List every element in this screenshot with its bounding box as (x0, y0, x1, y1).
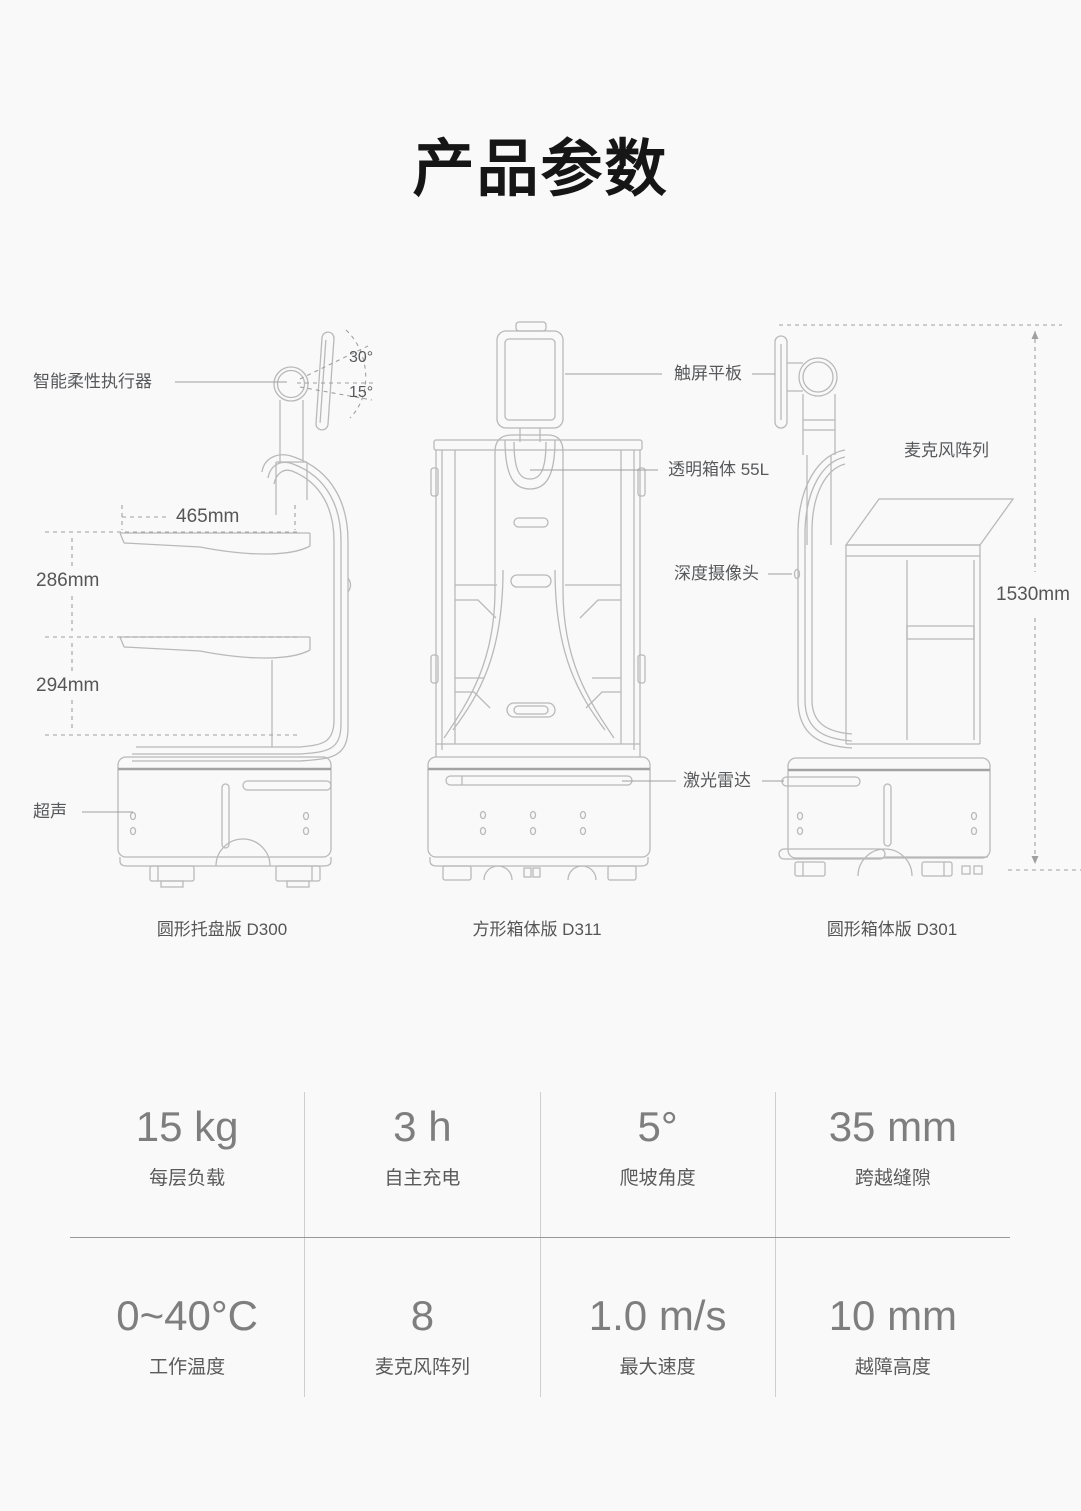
label-touchscreen: 触屏平板 (674, 365, 742, 384)
spec-label: 跨越缝隙 (776, 1163, 1010, 1190)
spec-label: 每层负载 (70, 1163, 304, 1190)
spec-label: 麦克风阵列 (305, 1352, 539, 1379)
label-ultrasonic: 超声 (33, 803, 67, 822)
spec-value: 35 mm (776, 1102, 1010, 1152)
label-total-height: 1530mm (996, 585, 1070, 606)
spec-cell-max-speed: 1.0 m/s 最大速度 (541, 1238, 776, 1397)
spec-value: 10 mm (776, 1291, 1010, 1341)
label-mic-array: 麦克风阵列 (904, 442, 989, 461)
spec-value: 5° (541, 1102, 775, 1152)
spec-grid: 15 kg 每层负载 3 h 自主充电 5° 爬坡角度 35 mm 跨越缝隙 0… (70, 1092, 1010, 1397)
label-actuator: 智能柔性执行器 (33, 373, 152, 392)
label-angle-up: 30° (349, 349, 373, 367)
spec-value: 0~40°C (70, 1291, 304, 1341)
spec-cell-payload: 15 kg 每层负载 (70, 1092, 305, 1237)
spec-cell-gap-crossing: 35 mm 跨越缝隙 (776, 1092, 1010, 1237)
product-spec-page: 产品参数 (0, 0, 1081, 1511)
label-lidar: 激光雷达 (683, 772, 751, 791)
spec-label: 爬坡角度 (541, 1163, 775, 1190)
spec-cell-climb-angle: 5° 爬坡角度 (541, 1092, 776, 1237)
spec-cell-charging: 3 h 自主充电 (305, 1092, 540, 1237)
robot-line-art (0, 0, 1081, 1000)
spec-label: 越障高度 (776, 1352, 1010, 1379)
spec-cell-obstacle-height: 10 mm 越障高度 (776, 1238, 1010, 1397)
caption-d300: 圆形托盘版 D300 (157, 915, 287, 940)
robot-d311-drawing (428, 322, 650, 880)
label-gap-lower: 294mm (36, 676, 99, 697)
spec-cell-temperature: 0~40°C 工作温度 (70, 1238, 305, 1397)
label-tray-width: 465mm (176, 507, 239, 528)
label-gap-upper: 286mm (36, 571, 99, 592)
label-depth-camera: 深度摄像头 (674, 565, 759, 584)
robot-d300-drawing (118, 332, 351, 887)
caption-d301: 圆形箱体版 D301 (827, 915, 957, 940)
spec-label: 最大速度 (541, 1352, 775, 1379)
spec-value: 3 h (305, 1102, 539, 1152)
spec-value: 8 (305, 1291, 539, 1341)
spec-value: 1.0 m/s (541, 1291, 775, 1341)
label-transparent-box: 透明箱体 55L (668, 461, 769, 480)
spec-cell-mic-array: 8 麦克风阵列 (305, 1238, 540, 1397)
spec-grid-row-1: 15 kg 每层负载 3 h 自主充电 5° 爬坡角度 35 mm 跨越缝隙 (70, 1092, 1010, 1238)
spec-value: 15 kg (70, 1102, 304, 1152)
spec-grid-row-2: 0~40°C 工作温度 8 麦克风阵列 1.0 m/s 最大速度 10 mm 越… (70, 1238, 1010, 1397)
label-angle-down: 15° (349, 384, 373, 402)
robot-d301-drawing (775, 336, 1013, 876)
spec-label: 自主充电 (305, 1163, 539, 1190)
spec-label: 工作温度 (70, 1352, 304, 1379)
caption-d311: 方形箱体版 D311 (472, 915, 601, 940)
